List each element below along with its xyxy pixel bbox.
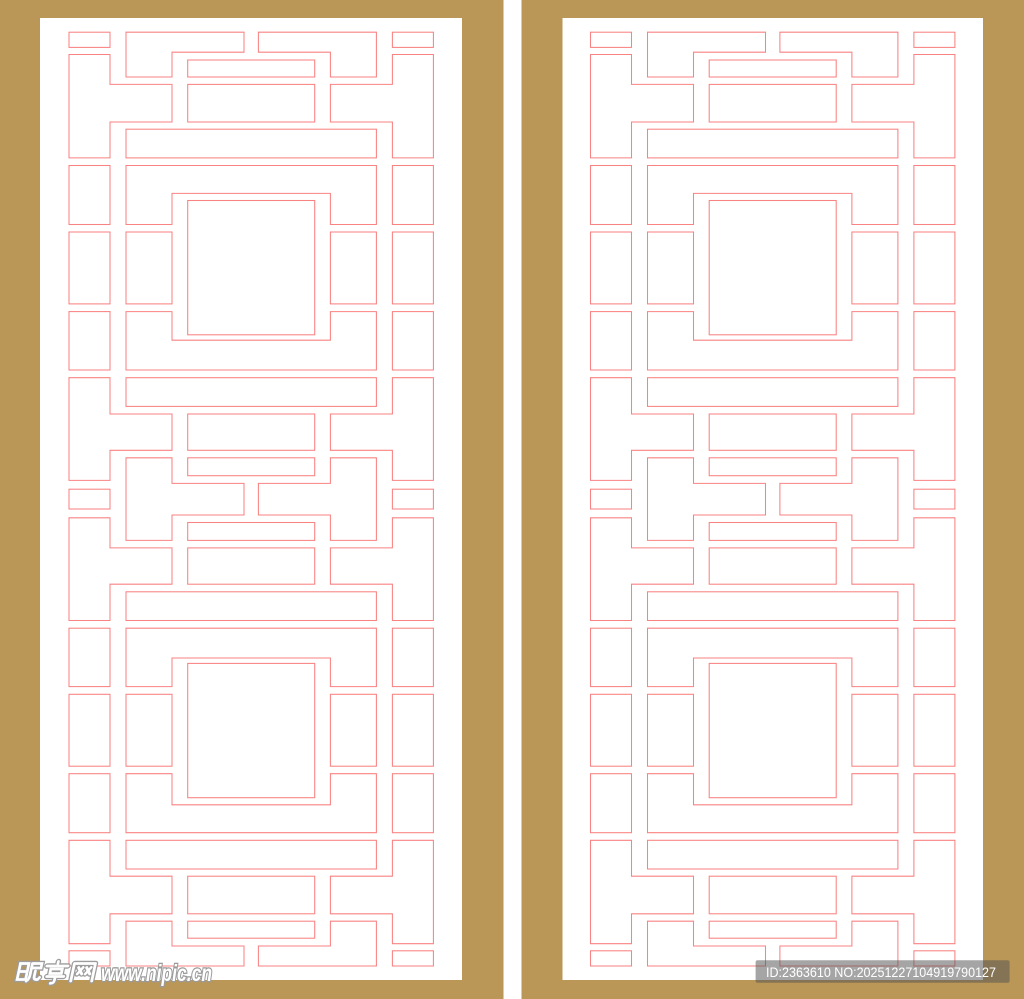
svg-text:ID:2363610 NO:2025122710491979: ID:2363610 NO:20251227104919790127 [766,964,996,980]
svg-text:www.nipic.cn: www.nipic.cn [101,960,212,986]
